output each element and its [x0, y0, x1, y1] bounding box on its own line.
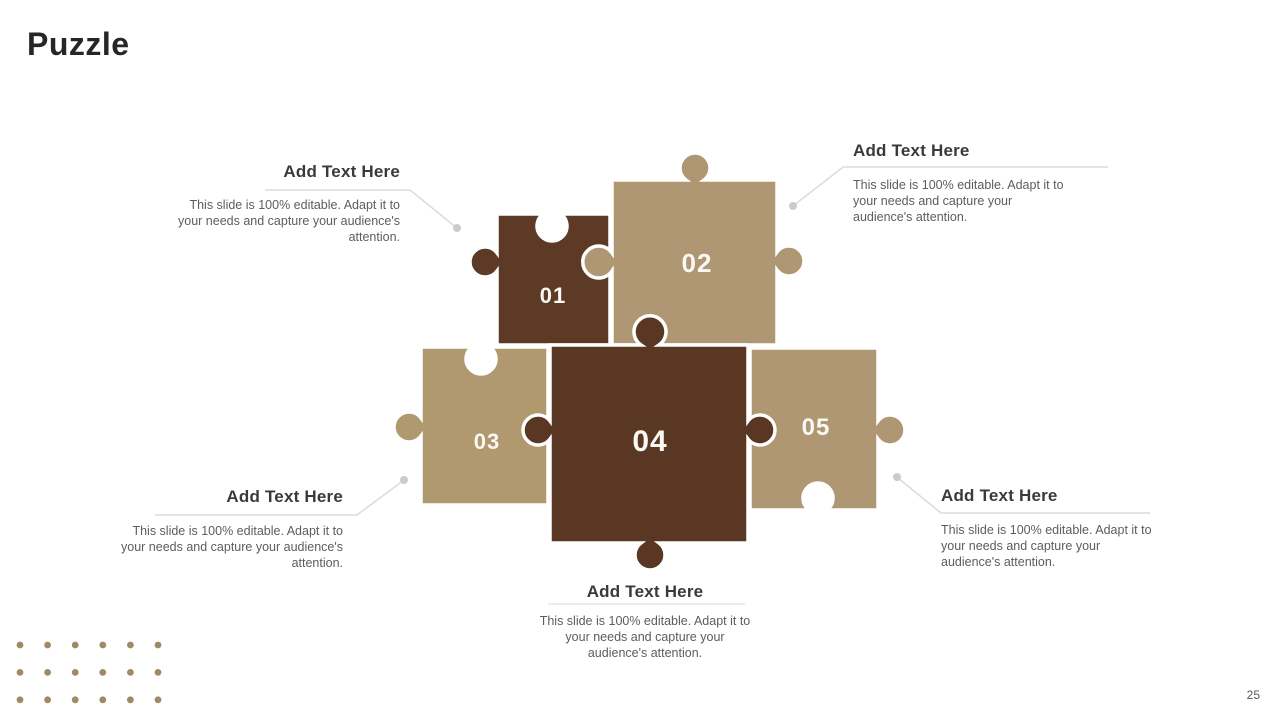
text-block-top-left: Add Text Here This slide is 100% editabl…: [168, 162, 400, 245]
decor-dot: [44, 669, 51, 676]
decor-dot: [17, 696, 24, 703]
text-block-body: This slide is 100% editable. Adapt it to…: [168, 197, 400, 245]
text-block-heading: Add Text Here: [111, 487, 343, 507]
decor-dot: [155, 696, 162, 703]
text-block-heading: Add Text Here: [168, 162, 400, 182]
text-block-top-right: Add Text Here This slide is 100% editabl…: [853, 141, 1093, 225]
decor-dot: [127, 696, 134, 703]
decor-dot: [155, 642, 162, 649]
decor-dot: [127, 669, 134, 676]
decor-dot: [155, 669, 162, 676]
decor-dot: [44, 696, 51, 703]
decor-dot: [44, 642, 51, 649]
piece-number-02: 02: [682, 248, 713, 278]
page-number: 25: [1247, 688, 1260, 702]
decor-dot: [127, 642, 134, 649]
text-block-heading: Add Text Here: [853, 141, 1093, 161]
decor-dot: [99, 696, 106, 703]
text-block-heading: Add Text Here: [515, 582, 775, 602]
connector-dot: [893, 473, 901, 481]
decor-dot: [17, 669, 24, 676]
text-block-body: This slide is 100% editable. Adapt it to…: [941, 522, 1153, 570]
connector-dot: [400, 476, 408, 484]
text-block-body: This slide is 100% editable. Adapt it to…: [111, 523, 343, 571]
decor-dot: [99, 642, 106, 649]
decor-dot: [72, 696, 79, 703]
piece-number-05: 05: [802, 414, 831, 441]
text-block-bottom-left: Add Text Here This slide is 100% editabl…: [111, 487, 343, 571]
decor-dot: [72, 642, 79, 649]
decor-dot: [72, 669, 79, 676]
text-block-heading: Add Text Here: [941, 486, 1181, 506]
text-block-body: This slide is 100% editable. Adapt it to…: [515, 613, 775, 661]
decor-dot: [17, 642, 24, 649]
text-block-body: This slide is 100% editable. Adapt it to…: [853, 177, 1065, 225]
text-block-bottom-center: Add Text Here This slide is 100% editabl…: [515, 582, 775, 661]
dot-grid: [17, 642, 162, 704]
connector-dot: [453, 224, 461, 232]
text-block-bottom-right: Add Text Here This slide is 100% editabl…: [941, 486, 1181, 570]
decor-dot: [99, 669, 106, 676]
puzzle-piece-01: [470, 214, 610, 345]
piece-number-01: 01: [540, 283, 566, 308]
puzzle-pieces: [394, 153, 905, 570]
piece-number-04: 04: [632, 425, 667, 458]
piece-number-03: 03: [474, 429, 500, 454]
connector-dot: [789, 202, 797, 210]
presentation-slide: Puzzle 01 02 03 04: [0, 0, 1280, 720]
